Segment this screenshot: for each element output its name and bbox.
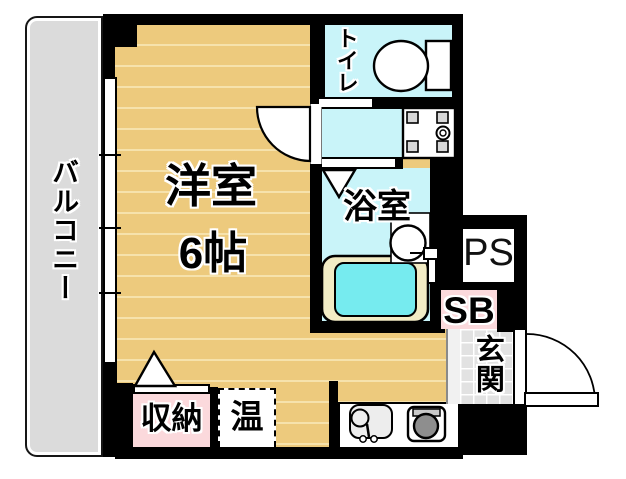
wall: [329, 381, 338, 448]
wall: [103, 25, 115, 80]
storage-label: 収納: [133, 402, 210, 435]
bathroom-label: 浴室: [328, 189, 426, 226]
shoe-box-label: SB: [441, 291, 497, 331]
wall: [497, 285, 527, 332]
room-doorway: [310, 104, 322, 164]
toilet-doorway: [319, 99, 372, 107]
washroom-area: [322, 108, 402, 158]
bathroom-threshold: [322, 157, 395, 169]
wall: [395, 157, 403, 169]
entrance-door-swing-icon: [525, 334, 598, 406]
wall: [210, 387, 218, 448]
entrance-label: 玄関: [471, 334, 502, 394]
wall: [310, 14, 325, 109]
wall: [310, 162, 322, 330]
wall: [115, 383, 133, 448]
wall: [310, 321, 445, 333]
toilet-label: トイレ: [334, 27, 358, 93]
wall: [115, 447, 463, 459]
kitchen-counter: [338, 402, 460, 448]
room-size-label: 6帖: [148, 230, 278, 278]
pipe-shaft-label: PS: [463, 233, 514, 274]
entrance-step: [446, 329, 460, 404]
balcony-label: バルコニー: [48, 158, 77, 303]
floorplan-canvas: バルコニー 洋室 6帖 トイレ 浴室 収納 温 PS SB 玄関: [0, 0, 626, 479]
wall: [458, 404, 527, 455]
water-heater-label: 温: [218, 399, 276, 435]
entrance-doorway: [513, 330, 527, 404]
room-label: 洋室: [148, 162, 274, 212]
storage-sliding-door: [133, 384, 210, 394]
wall: [103, 14, 463, 25]
